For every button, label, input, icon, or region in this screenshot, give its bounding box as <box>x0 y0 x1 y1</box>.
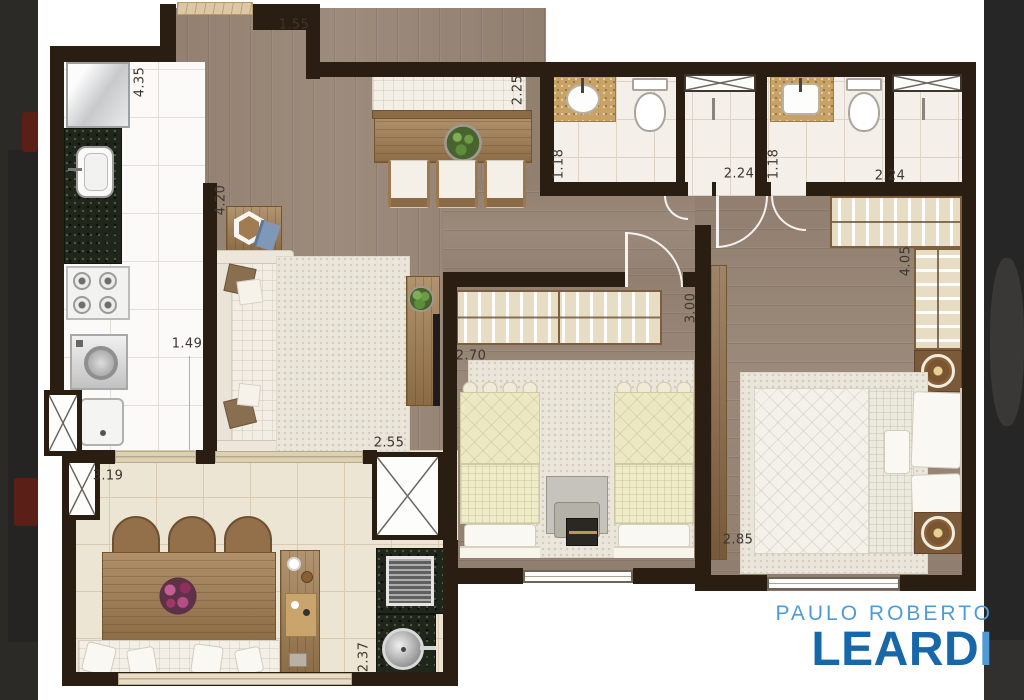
dimension-label: 2.85 <box>723 533 754 548</box>
stove-burner-icon <box>73 272 91 290</box>
entry-doormat-icon <box>177 2 253 15</box>
right-band-highlight <box>990 258 1024 426</box>
kitchen-faucet-icon <box>68 168 82 171</box>
dimension-label: 2.70 <box>456 349 487 364</box>
wall <box>900 575 976 591</box>
wall <box>50 46 64 394</box>
master-window-icon <box>767 577 900 590</box>
bed-pillow-icon <box>911 391 964 469</box>
dimension-label: 1.18 <box>552 149 567 180</box>
wall <box>160 4 176 62</box>
book-accent <box>569 531 597 534</box>
brand-logo: PAULO ROBERTO LEARDI <box>673 602 993 673</box>
shower-tray-icon <box>684 74 756 92</box>
dimension-label: 1.18 <box>767 149 782 180</box>
bed-pillow-icon <box>618 524 690 548</box>
wall <box>806 182 976 196</box>
potted-plant-icon <box>408 286 434 312</box>
left-band-red-artifact-bottom <box>14 478 38 526</box>
bedside-lamp-icon <box>921 516 955 550</box>
bed-pillow-icon <box>884 430 910 474</box>
chair-base <box>391 198 427 207</box>
dimension-leader-line <box>189 356 190 450</box>
door-leaf <box>625 232 628 287</box>
balcony-sliding-door-threshold <box>215 451 363 463</box>
toilet-icon <box>846 78 882 91</box>
chair-base <box>439 198 475 207</box>
wall <box>316 62 976 77</box>
shower-fixture-icon <box>922 98 925 120</box>
chair-base <box>487 198 523 207</box>
dimension-label: 2.24 <box>724 167 755 182</box>
bed-foot-fold <box>614 546 694 558</box>
bed-quilt <box>460 392 540 464</box>
water-heater-icon <box>80 398 124 446</box>
dimension-label: 4.35 <box>133 67 148 98</box>
dining-chair-icon <box>388 160 430 208</box>
wall <box>683 272 695 287</box>
throw-pillow-icon <box>237 383 261 407</box>
logo-line2: LEARDI <box>673 626 993 673</box>
wall <box>50 46 168 62</box>
single-bed-icon <box>458 382 542 558</box>
wall <box>443 272 457 584</box>
bed-quilt <box>614 392 694 464</box>
door-leaf <box>716 196 719 248</box>
master-closet-vertical-icon <box>914 248 962 350</box>
toilet-bowl-icon <box>848 92 880 132</box>
dimension-label: 2.55 <box>374 436 405 451</box>
bedroom2-window-icon <box>523 570 633 583</box>
washing-machine-icon <box>70 334 128 390</box>
wall <box>695 225 711 577</box>
wall <box>443 540 458 686</box>
bed-blanket <box>460 464 540 524</box>
dimension-label: 4.20 <box>214 185 229 216</box>
dining-chair-icon <box>484 160 526 208</box>
bed-duvet <box>754 388 870 554</box>
shower-tray-icon <box>892 74 962 92</box>
cabinet-bottle-icon <box>291 601 299 609</box>
wall <box>712 182 716 196</box>
shower-fixture-icon <box>712 98 715 120</box>
dimension-label: 1.49 <box>172 337 203 352</box>
toilet-bowl-icon <box>634 92 666 132</box>
dimension-label: 3.19 <box>93 469 124 484</box>
bath1-faucet-icon <box>581 78 584 93</box>
logo-line2-main: LEARD <box>811 623 979 676</box>
wall <box>695 575 767 591</box>
stove-burner-icon <box>99 272 117 290</box>
dimension-label: 2.37 <box>357 642 372 673</box>
toilet-icon <box>632 78 668 91</box>
logo-line2-accent: I <box>979 623 993 676</box>
dining-banquette-icon <box>372 74 526 112</box>
refrigerator-icon <box>66 62 130 128</box>
cabinet-item-icon <box>289 653 307 667</box>
washer-door-icon <box>84 346 118 380</box>
master-dresser-panel <box>710 265 727 560</box>
living-rug <box>276 256 410 452</box>
cabinet-bottle-icon <box>303 609 310 616</box>
kitchen-sink-basin <box>84 153 108 191</box>
dining-chair-icon <box>436 160 478 208</box>
dimension-label: 4.05 <box>899 246 914 277</box>
wardrobe-divider <box>558 292 560 343</box>
wall <box>203 183 217 453</box>
bar-cabinet-icon <box>280 550 320 682</box>
cabinet-bowl-icon <box>301 571 313 583</box>
wall <box>755 62 767 196</box>
wall <box>962 62 976 591</box>
ventilation-shaft-icon <box>44 390 82 456</box>
ventilation-shaft-icon <box>372 452 443 540</box>
master-closet-hangers-icon <box>830 196 962 248</box>
bed-foot-fold <box>460 546 540 558</box>
dining-centerpiece-plant-icon <box>444 124 482 162</box>
ventilation-shaft-icon <box>64 458 100 520</box>
stove-burner-icon <box>73 296 91 314</box>
bed-blanket <box>614 464 694 524</box>
left-band-inner-panel <box>8 150 38 642</box>
balcony-faucet-icon <box>420 646 436 650</box>
wall <box>767 182 771 196</box>
balcony-window-rail <box>118 673 352 685</box>
single-bed-icon <box>612 382 696 558</box>
balcony-sliding-door-threshold <box>115 451 196 463</box>
flower-centerpiece-icon <box>158 576 198 616</box>
left-band-red-artifact-top <box>22 112 38 152</box>
cabinet-tray-icon <box>285 593 317 637</box>
stove-burner-icon <box>99 296 117 314</box>
sink-drain-icon <box>401 647 406 652</box>
cabinet-plate-icon <box>287 557 301 571</box>
tv-icon <box>433 314 440 406</box>
washer-knob-icon <box>76 340 83 347</box>
dimension-label: 3.00 <box>684 293 699 324</box>
dimension-label: 2.25 <box>511 75 526 106</box>
stove-icon <box>66 266 130 320</box>
heater-dot-icon <box>100 430 106 436</box>
dimension-label: 2.24 <box>875 169 906 184</box>
barbecue-grill-icon <box>386 556 434 606</box>
wall <box>196 450 215 464</box>
bed-pillow-icon <box>464 524 536 548</box>
round-sink-icon <box>382 628 424 670</box>
books-icon <box>566 518 598 546</box>
throw-pillow-icon <box>236 278 263 305</box>
bath2-faucet-icon <box>799 78 802 92</box>
dimension-label: 1.55 <box>279 18 310 33</box>
wall <box>540 182 688 196</box>
wall <box>443 272 625 287</box>
wall <box>633 568 695 584</box>
floor-plan-page: 1.55 4.35 2.25 1.18 2.24 1.18 2.24 4.20 … <box>0 0 1024 700</box>
